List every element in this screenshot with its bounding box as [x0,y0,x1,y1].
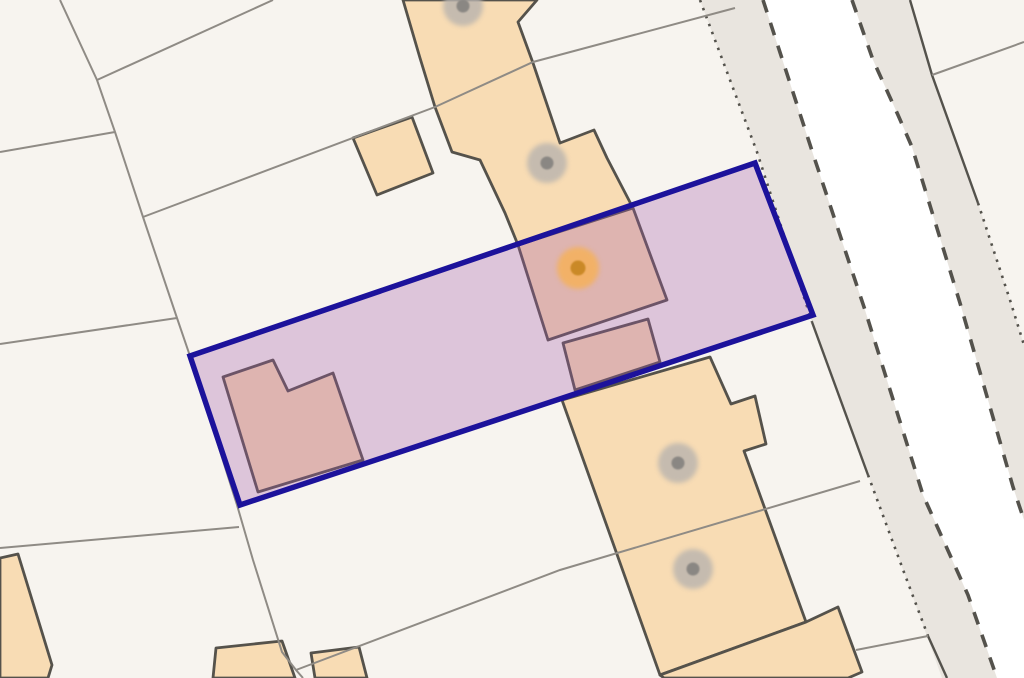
building-bottom-2 [311,647,367,678]
building-marker-2 [541,157,554,170]
map-canvas[interactable] [0,0,1024,678]
building-marker-selected [571,261,586,276]
building-marker-4 [687,563,700,576]
building-marker-3 [672,457,685,470]
building-marker-1 [457,0,470,13]
building-bottom-1 [213,641,295,678]
map-viewport [0,0,1024,678]
